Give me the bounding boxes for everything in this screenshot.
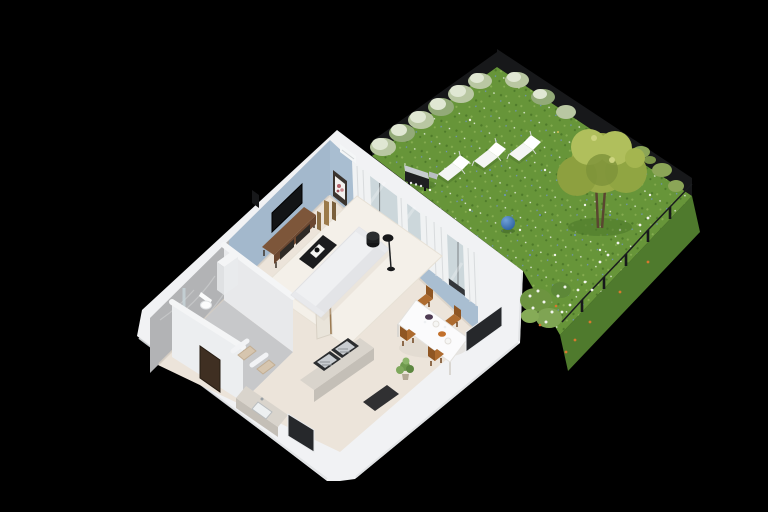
bowl-plum (425, 314, 433, 320)
bowl-orange (438, 331, 446, 337)
isometric-scene: 3D cutaway floor plan of a small apartme… (0, 0, 768, 512)
floor-plan-render: 3D cutaway floor plan of a small apartme… (0, 0, 768, 512)
plate (433, 321, 439, 327)
garden-ball (501, 216, 515, 234)
faucet (261, 398, 264, 401)
tree-shadow (568, 218, 632, 236)
ottoman (367, 232, 380, 248)
plate (445, 338, 451, 344)
